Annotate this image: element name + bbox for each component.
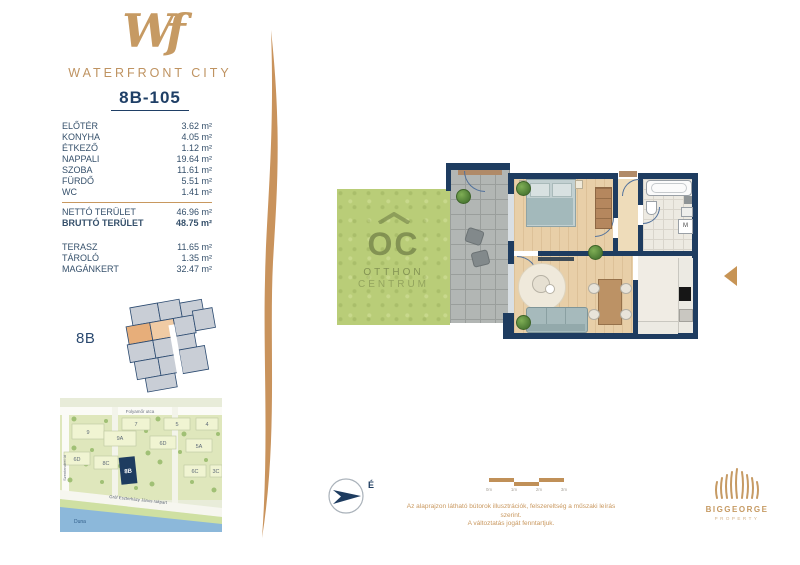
sofa xyxy=(526,307,588,333)
table-row: ÉTKEZŐ1.12 m² xyxy=(62,143,212,154)
dining-table xyxy=(598,279,622,325)
room-area-table: ELŐTÉR3.62 m² KONYHA4.05 m² ÉTKEZŐ1.12 m… xyxy=(62,121,212,275)
compass-north-label: É xyxy=(368,480,374,490)
wall xyxy=(508,241,514,263)
svg-text:9A: 9A xyxy=(117,436,124,442)
table-row: KONYHA4.05 m² xyxy=(62,132,212,143)
site-map: 7 5 4 9 9A 6D 5A 6D 8C 6C 3C 8B Folyamőr… xyxy=(60,398,222,532)
window xyxy=(508,263,514,315)
kitchen-counter-bottom xyxy=(638,321,678,334)
table-row: SZOBA11.61 m² xyxy=(62,165,212,176)
plant-icon xyxy=(588,245,603,260)
wall xyxy=(638,225,643,251)
svg-text:9: 9 xyxy=(86,430,89,436)
dining-chair xyxy=(588,283,600,294)
roof-icon xyxy=(376,212,412,224)
wall-corner xyxy=(503,313,513,339)
compass-icon xyxy=(327,477,367,517)
biggeorge-crown-icon xyxy=(713,466,761,500)
brand-name: WATERFRONT CITY xyxy=(45,66,255,80)
divider-rule xyxy=(62,202,212,203)
plant-icon xyxy=(456,189,471,204)
table-row: WC1.41 m² xyxy=(62,187,212,198)
svg-text:8B: 8B xyxy=(124,469,133,476)
wall xyxy=(446,163,510,170)
table-row-gross: BRUTTÓ TERÜLET48.75 m² xyxy=(62,218,212,229)
waterfront-monogram-logo: Wf xyxy=(60,2,240,60)
bed xyxy=(526,179,576,227)
dining-chair xyxy=(588,309,600,320)
wall xyxy=(613,179,618,218)
dining-chair xyxy=(620,283,632,294)
stove xyxy=(679,287,691,301)
unit-id: 8B-105 xyxy=(111,88,189,111)
scale-bar: 0m 1m 2m 3m xyxy=(489,478,565,492)
table-row: TERASZ11.65 m² xyxy=(62,242,212,253)
svg-text:4: 4 xyxy=(205,422,208,428)
dining-chair xyxy=(620,309,632,320)
developer-logo: BIGGEORGE PROPERTY xyxy=(695,466,779,522)
entry-mat xyxy=(619,171,637,177)
svg-text:6C: 6C xyxy=(191,469,198,475)
tv-console xyxy=(538,257,574,261)
curve-divider xyxy=(250,22,296,546)
table-row: ELŐTÉR3.62 m² xyxy=(62,121,212,132)
wall xyxy=(638,173,698,179)
river-label: Duna xyxy=(74,519,86,525)
table-row-net: NETTÓ TERÜLET46.96 m² xyxy=(62,207,212,218)
wall xyxy=(538,251,698,256)
svg-text:8C: 8C xyxy=(102,461,109,467)
table-row: TÁROLÓ1.35 m² xyxy=(62,253,212,264)
bathtub xyxy=(646,180,692,196)
nightstand xyxy=(575,180,583,189)
plant-icon xyxy=(516,181,531,196)
pillow xyxy=(552,183,572,197)
private-garden: OC OTTHON CENTRUM xyxy=(337,189,450,325)
street-label-top: Folyamőr utca xyxy=(126,409,155,414)
table-row: FÜRDŐ5.51 m² xyxy=(62,176,212,187)
washing-machine: M xyxy=(678,219,693,234)
wall xyxy=(613,238,618,251)
keyplan-diagram xyxy=(92,296,242,396)
wardrobe xyxy=(595,187,612,229)
pillow xyxy=(530,183,550,197)
wall xyxy=(508,173,514,193)
page-nav-arrow-left[interactable] xyxy=(724,266,737,286)
plant-icon xyxy=(516,315,531,330)
blanket xyxy=(527,198,573,225)
svg-text:7: 7 xyxy=(134,422,137,428)
window xyxy=(508,193,514,243)
side-table xyxy=(545,284,555,294)
table-row: MAGÁNKERT32.47 m² xyxy=(62,264,212,275)
table-row: NAPPALI19.64 m² xyxy=(62,154,212,165)
svg-text:5: 5 xyxy=(175,422,178,428)
street-label-left: Szentendrei út xyxy=(62,454,67,481)
map-highlight-8b: 8B xyxy=(119,456,138,485)
toilet xyxy=(646,201,657,215)
svg-text:6D: 6D xyxy=(159,441,166,447)
unit-id-wrap: 8B-105 xyxy=(60,88,240,111)
bathroom-sink xyxy=(681,207,693,217)
svg-text:5A: 5A xyxy=(196,444,203,450)
svg-text:6D: 6D xyxy=(73,457,80,463)
floor-plan: OC OTTHON CENTRUM xyxy=(332,163,700,343)
disclaimer: Az alaprajzon látható bútorok illusztrác… xyxy=(396,503,626,529)
shaft xyxy=(684,196,692,204)
otthon-centrum-watermark: OC OTTHON CENTRUM xyxy=(337,211,450,291)
brochure-page: Wf WATERFRONT CITY 8B-105 ELŐTÉR3.62 m² … xyxy=(0,0,800,565)
svg-text:3C: 3C xyxy=(212,469,219,475)
kitchen-sink xyxy=(679,309,693,322)
wall xyxy=(446,163,451,191)
